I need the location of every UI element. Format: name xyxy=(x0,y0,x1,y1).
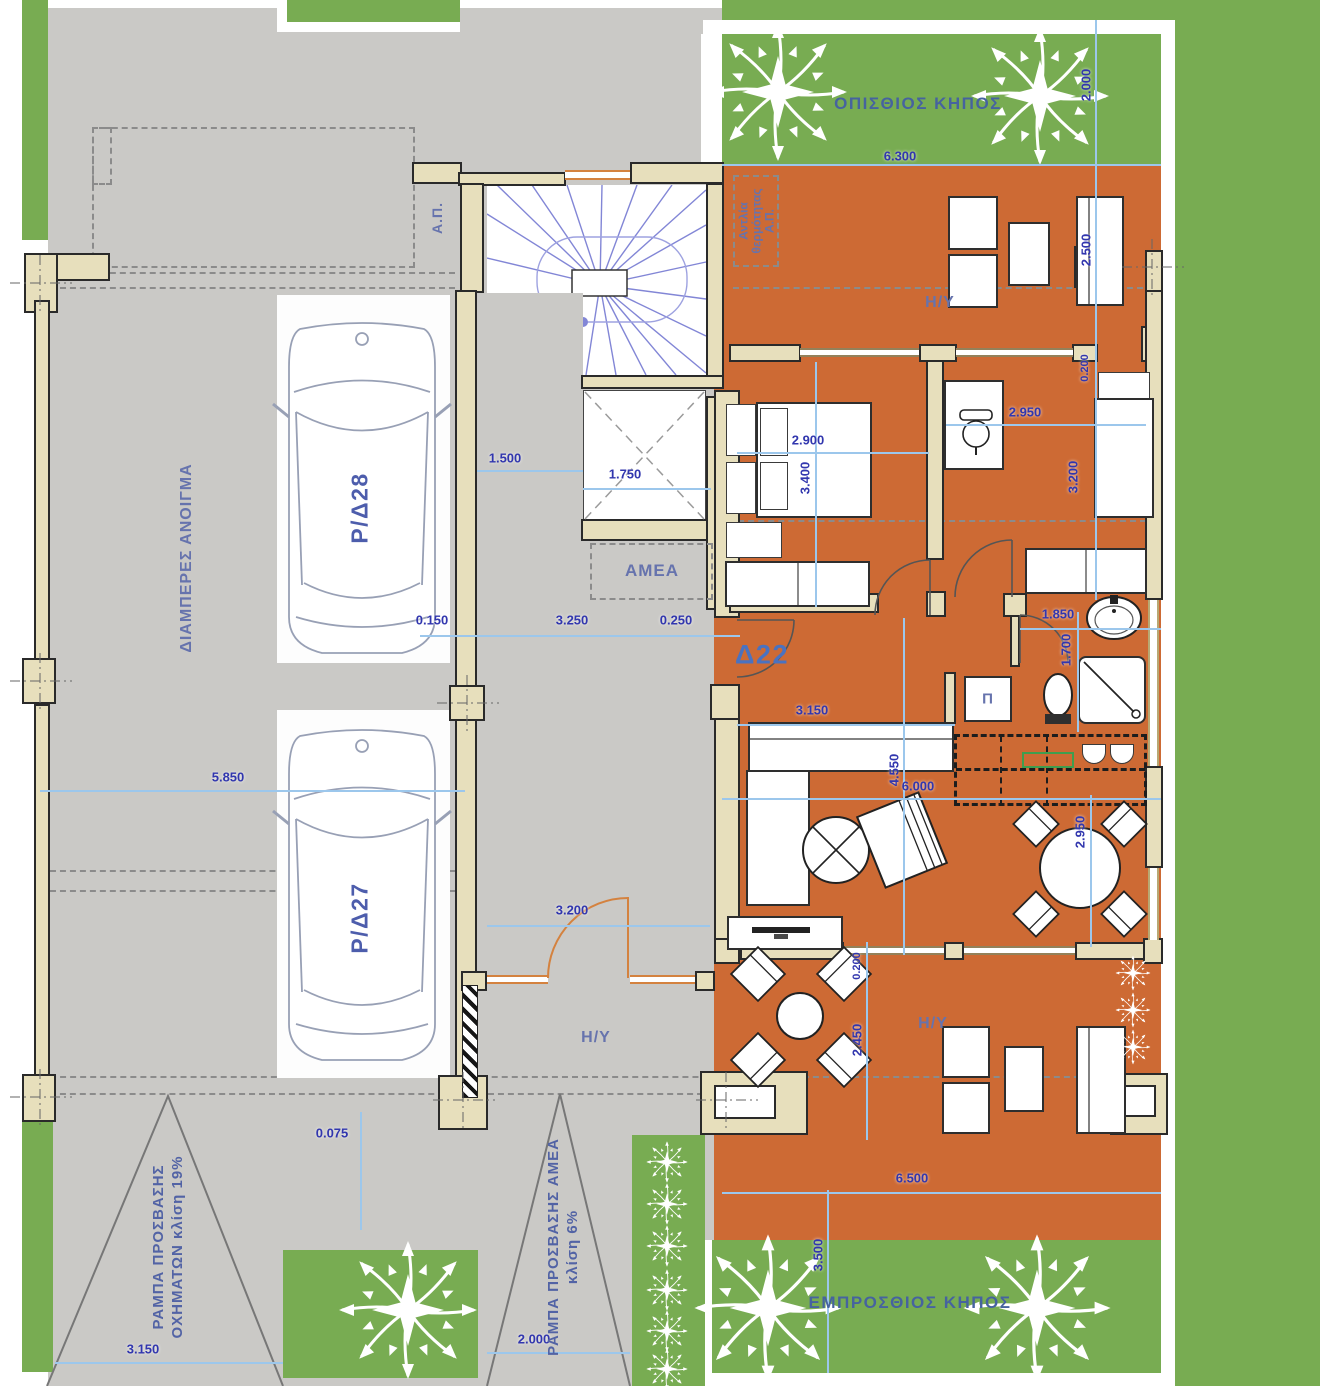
dim-label: 2.450 xyxy=(850,1024,865,1057)
window xyxy=(956,348,1073,357)
bench xyxy=(726,522,782,558)
terrace-armchair xyxy=(948,254,998,308)
pillow xyxy=(760,462,788,510)
planter-inner xyxy=(1122,1085,1156,1117)
front-garden-label: ΕΜΠΡΟΣΘΙΟΣ ΚΗΠΟΣ xyxy=(809,1293,1012,1313)
dim-label: 1.500 xyxy=(489,451,522,466)
parking2-label: P/Δ27 xyxy=(347,882,374,953)
window xyxy=(1148,600,1159,766)
dim-label: 1.850 xyxy=(1042,607,1075,622)
elevator-shaft xyxy=(583,390,706,521)
laundry-label: Π xyxy=(982,691,994,708)
single-bed xyxy=(1094,398,1154,518)
dim-label: 0.150 xyxy=(416,613,449,628)
wardrobe-line xyxy=(1085,550,1087,592)
dim-label: 2.500 xyxy=(1079,234,1094,267)
hatched-wall xyxy=(462,985,478,1098)
bedroom-divider-wall xyxy=(926,360,944,560)
vestibule-wall xyxy=(695,971,715,991)
wall-pier xyxy=(710,684,740,720)
wardrobe-line xyxy=(797,563,799,605)
hy-label-entry: Η/Υ xyxy=(581,1029,611,1047)
terrace-armchair xyxy=(942,1082,990,1134)
dim-label: 2.950 xyxy=(1073,816,1088,849)
site-boundary-north xyxy=(703,20,1175,34)
mid-green-patch xyxy=(283,1250,478,1378)
bath-wall xyxy=(1010,615,1020,667)
terrace-table xyxy=(1008,222,1050,286)
apartment-label: Δ22 xyxy=(735,640,789,671)
sofa-line xyxy=(750,738,952,740)
sofa-line xyxy=(1088,1028,1090,1132)
dim-label: 0.200 xyxy=(851,952,863,980)
dim-label: 0.250 xyxy=(660,613,693,628)
site-boundary-east xyxy=(1161,20,1175,1386)
wall-pier xyxy=(22,658,56,704)
pillow xyxy=(760,408,788,456)
dim-label: 0.200 xyxy=(1079,354,1091,382)
back-garden-label: ΟΠΙΣΘΙΟΣ ΚΗΠΟΣ xyxy=(834,94,1002,114)
dim-label: 1.750 xyxy=(609,467,642,482)
dim-label: 3.500 xyxy=(811,1239,826,1272)
east-wall xyxy=(1143,938,1163,964)
stair-wall xyxy=(412,162,462,184)
dim-label: 2.000 xyxy=(518,1332,551,1347)
wall-pier xyxy=(1145,250,1163,292)
through-opening-label: ΔΙΑΜΠΕΡΕΣ ΑΝΟΙΓΜΑ xyxy=(178,463,196,652)
stair-wall xyxy=(581,375,724,389)
wall-pier xyxy=(1003,593,1027,617)
window xyxy=(487,975,548,984)
dim-label: 3.200 xyxy=(1066,461,1081,494)
cooktop xyxy=(1022,752,1074,768)
bath-wall xyxy=(944,672,956,724)
back-top-green xyxy=(722,0,1175,20)
stair-wall xyxy=(630,162,724,184)
wall-west xyxy=(34,300,50,662)
elevator-wall xyxy=(581,519,708,541)
apartment-west-wall xyxy=(714,718,740,944)
stair-wall xyxy=(706,183,724,377)
ap-label: Α.Π. xyxy=(429,202,445,234)
dim-label: 3.150 xyxy=(796,703,829,718)
dim-label: 4.550 xyxy=(887,754,902,787)
nightstand xyxy=(726,404,756,456)
stair-wall xyxy=(460,183,484,293)
terrace-sofa xyxy=(1076,1026,1126,1134)
south-wall xyxy=(1075,942,1145,960)
wall-west xyxy=(34,704,50,1078)
tv-bench xyxy=(727,916,843,950)
site-boundary-west-top xyxy=(701,34,722,165)
understair-area xyxy=(487,293,583,390)
bush-strip xyxy=(632,1135,705,1386)
dim-label: 6.500 xyxy=(896,1171,929,1186)
wall-pier xyxy=(22,1074,56,1122)
parking1-label: P/Δ28 xyxy=(347,472,374,543)
desk xyxy=(944,380,1004,470)
right-green-band xyxy=(1175,0,1320,1386)
dim-label: 6.300 xyxy=(884,149,917,164)
nightstand xyxy=(726,462,756,514)
amea-label: AMEA xyxy=(625,561,679,581)
dim-label: 6.000 xyxy=(902,779,935,794)
boundary-top xyxy=(277,22,460,32)
boundary-bottom xyxy=(712,1373,1161,1386)
dim-label: 3.250 xyxy=(556,613,589,628)
hy-label-terrace: Η/Υ xyxy=(918,1015,948,1033)
window xyxy=(800,348,919,357)
window xyxy=(630,975,695,984)
window xyxy=(1148,868,1159,940)
sofa-chaise xyxy=(746,770,810,906)
south-wall xyxy=(944,942,964,960)
left-green-strip-top xyxy=(22,0,48,240)
floor-plan: 6.300 2.000 2.500 0.200 2.950 2.900 3.40… xyxy=(0,0,1320,1386)
wall-pier xyxy=(926,591,946,617)
dim-label: 5.850 xyxy=(212,770,245,785)
terrace-step xyxy=(714,1085,776,1119)
dim-label: 2.000 xyxy=(1079,69,1094,102)
sofa-back xyxy=(748,722,954,772)
dim-label: 2.900 xyxy=(792,433,825,448)
dim-label: 2.950 xyxy=(1009,405,1042,420)
dim-label: 3.200 xyxy=(556,903,589,918)
terrace-armchair xyxy=(942,1026,990,1078)
terrace-table xyxy=(1004,1046,1044,1112)
window xyxy=(565,170,630,180)
dim-label: 3.400 xyxy=(798,462,813,495)
left-green-strip-bottom xyxy=(22,1122,53,1372)
window xyxy=(964,946,1075,955)
top-green-patch xyxy=(287,0,460,22)
east-wall xyxy=(1145,766,1163,868)
dim-label: 3.150 xyxy=(127,1342,160,1357)
shower xyxy=(1078,656,1146,724)
north-wall xyxy=(729,344,801,362)
dim-label: 1.700 xyxy=(1059,634,1074,667)
pillow xyxy=(1098,372,1150,400)
hy-label-top: Η/Υ xyxy=(925,294,955,312)
wall-pier xyxy=(449,685,485,721)
dim-label: 0.075 xyxy=(316,1126,349,1141)
terrace-armchair xyxy=(948,196,998,250)
